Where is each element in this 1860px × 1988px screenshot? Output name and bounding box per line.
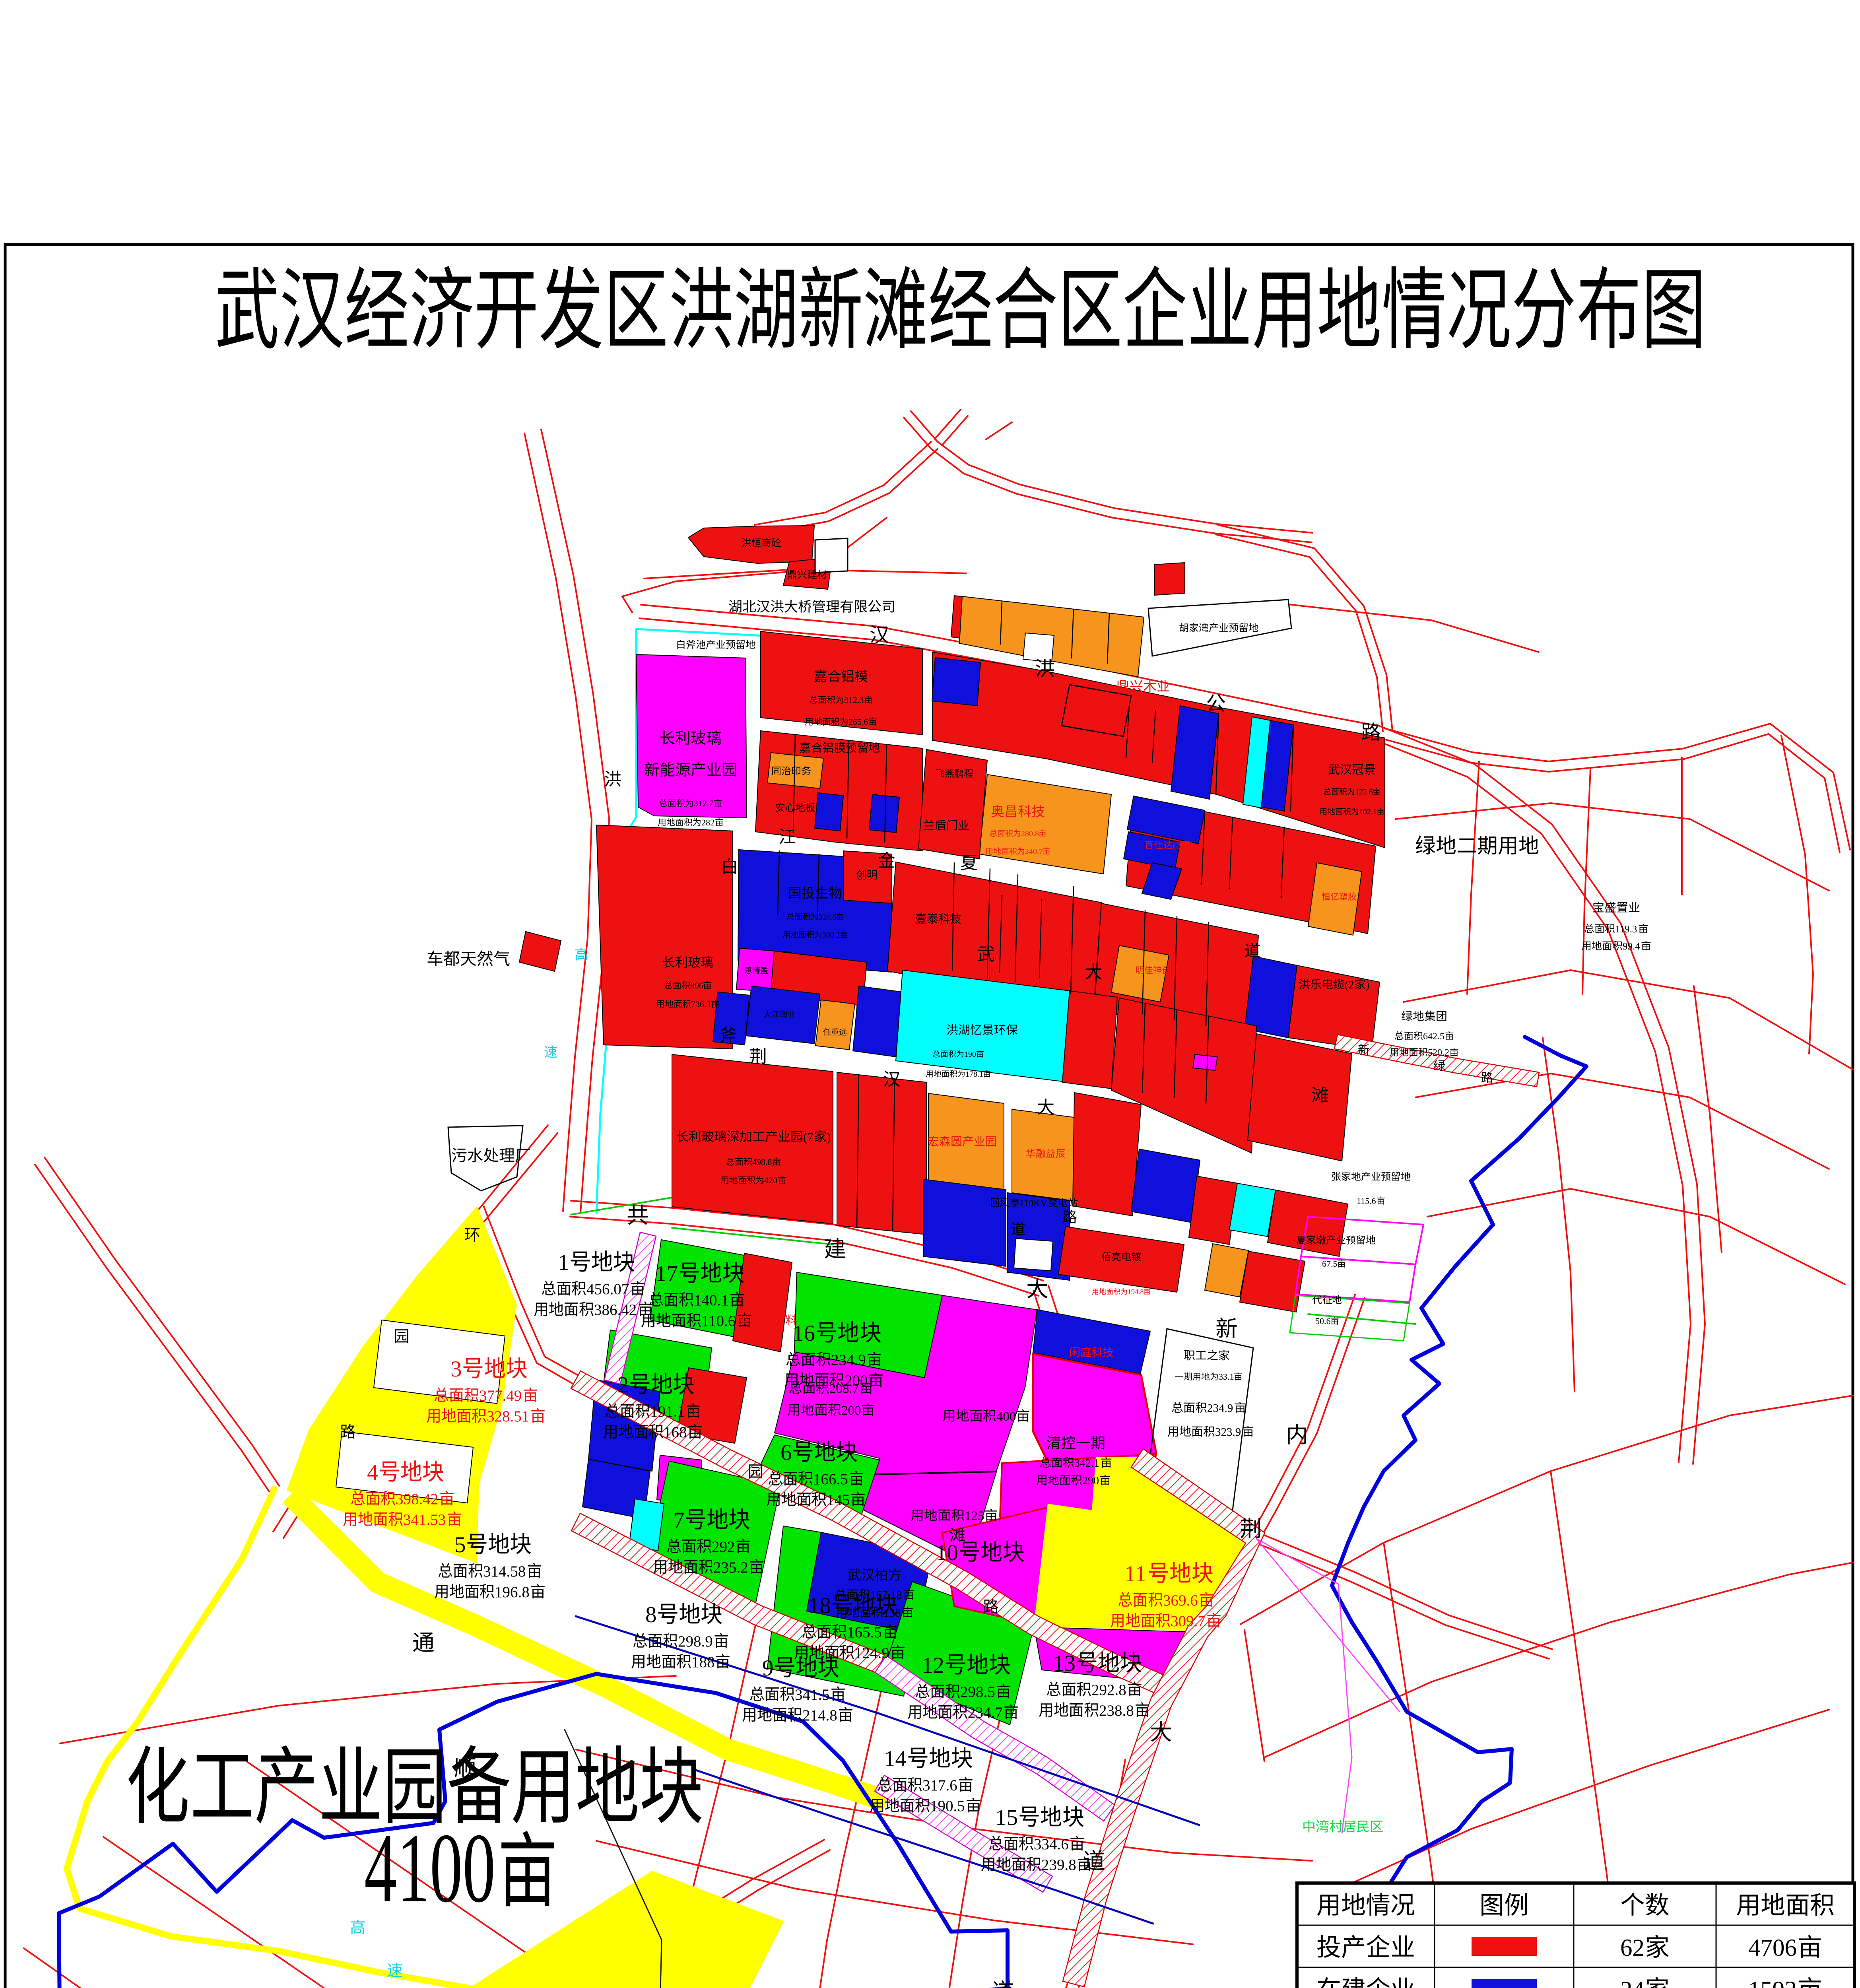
svg-text:309.7: 309.7 — [1171, 1613, 1206, 1630]
svg-text:3: 3 — [450, 1357, 462, 1382]
svg-text:342.1: 342.1 — [1074, 1457, 1099, 1470]
svg-text:2: 2 — [617, 1373, 629, 1398]
svg-text:62: 62 — [1620, 1935, 1644, 1961]
svg-text:): ) — [827, 1130, 831, 1144]
svg-text:208.7: 208.7 — [829, 1382, 859, 1396]
svg-text:12: 12 — [922, 1653, 944, 1678]
svg-text:282: 282 — [701, 817, 714, 827]
svg-text:238.8: 238.8 — [1099, 1702, 1134, 1719]
svg-text:386.42: 386.42 — [594, 1301, 637, 1318]
svg-text:234.9: 234.9 — [1207, 1402, 1233, 1415]
svg-text:168: 168 — [664, 1424, 687, 1441]
svg-text:400: 400 — [996, 1409, 1016, 1424]
svg-text:145: 145 — [827, 1491, 850, 1508]
svg-text:736.3: 736.3 — [691, 999, 711, 1009]
svg-text:(2: (2 — [1345, 979, 1354, 991]
svg-text:): ) — [1190, 841, 1194, 851]
svg-text:17: 17 — [655, 1261, 678, 1286]
svg-text:196.8: 196.8 — [495, 1584, 530, 1601]
svg-text:323.9: 323.9 — [1215, 1426, 1241, 1439]
svg-text:124.9: 124.9 — [854, 1644, 889, 1662]
svg-text:290.5: 290.5 — [1146, 703, 1164, 712]
svg-text:200: 200 — [841, 1404, 861, 1418]
svg-text:138: 138 — [883, 1607, 901, 1619]
svg-text:14: 14 — [884, 1746, 907, 1771]
svg-text:520.2: 520.2 — [1428, 1048, 1449, 1058]
svg-text:165.5: 165.5 — [847, 1624, 882, 1641]
svg-text:194.8: 194.8 — [1128, 1288, 1144, 1296]
svg-text:191.1: 191.1 — [650, 1403, 685, 1420]
svg-text:7: 7 — [673, 1508, 685, 1533]
svg-text:110KV: 110KV — [1019, 1198, 1047, 1209]
svg-text:312.3: 312.3 — [844, 695, 864, 705]
svg-text:292: 292 — [712, 1538, 735, 1555]
svg-text:190.5: 190.5 — [930, 1798, 965, 1815]
svg-text:33.1: 33.1 — [1219, 1372, 1234, 1382]
svg-text:(7: (7 — [803, 1130, 814, 1144]
svg-text:178.1: 178.1 — [965, 1070, 983, 1079]
svg-text:102.1: 102.1 — [1359, 808, 1377, 816]
svg-text:188: 188 — [691, 1654, 715, 1671]
svg-text:250.1: 250.1 — [1150, 721, 1168, 730]
svg-text:10: 10 — [936, 1540, 958, 1565]
svg-text:265.6: 265.6 — [848, 717, 868, 727]
svg-text:): ) — [1366, 979, 1369, 991]
svg-text:16: 16 — [792, 1321, 815, 1346]
svg-text:15: 15 — [995, 1805, 1018, 1830]
svg-text:18: 18 — [808, 1593, 831, 1618]
svg-text:214.8: 214.8 — [802, 1707, 837, 1724]
svg-text:341.5: 341.5 — [795, 1686, 830, 1703]
svg-text:290: 290 — [1082, 1475, 1099, 1487]
svg-text:166.5: 166.5 — [813, 1471, 848, 1488]
svg-text:4: 4 — [367, 1460, 379, 1485]
svg-text:110.6: 110.6 — [701, 1312, 736, 1330]
svg-text:498.8: 498.8 — [752, 1157, 772, 1167]
svg-text:6: 6 — [781, 1440, 792, 1465]
svg-text:377.49: 377.49 — [479, 1387, 522, 1404]
svg-text:24: 24 — [1620, 1977, 1644, 1988]
svg-text:235.2: 235.2 — [713, 1559, 748, 1576]
svg-text:99.4: 99.4 — [1623, 941, 1640, 952]
svg-text:341.53: 341.53 — [403, 1511, 446, 1528]
svg-text:324.6: 324.6 — [818, 913, 836, 922]
svg-text:140.1: 140.1 — [694, 1292, 729, 1309]
svg-text:280.8: 280.8 — [1021, 829, 1039, 838]
svg-text:456.07: 456.07 — [586, 1281, 629, 1298]
svg-text:115.6: 115.6 — [1357, 1196, 1376, 1206]
svg-text:125: 125 — [965, 1509, 984, 1523]
svg-text:317.6: 317.6 — [922, 1777, 957, 1794]
svg-text:239.8: 239.8 — [1041, 1856, 1076, 1873]
svg-text:8: 8 — [645, 1602, 657, 1627]
svg-text:239.4: 239.4 — [1124, 1272, 1140, 1280]
svg-text:234.9: 234.9 — [831, 1351, 866, 1369]
svg-text:806: 806 — [690, 980, 703, 990]
svg-text:167.18: 167.18 — [870, 1589, 902, 1602]
svg-text:234.7: 234.7 — [968, 1704, 1003, 1721]
svg-text:13: 13 — [1053, 1651, 1076, 1676]
svg-text:1593: 1593 — [1748, 1977, 1797, 1988]
svg-text:420: 420 — [764, 1175, 777, 1185]
svg-text:9: 9 — [762, 1656, 774, 1681]
svg-text:122.6: 122.6 — [1355, 788, 1373, 796]
svg-text:(2: (2 — [1173, 841, 1181, 851]
svg-text:314.58: 314.58 — [483, 1563, 526, 1580]
svg-text:67.5: 67.5 — [1322, 1259, 1338, 1269]
svg-text:119.3: 119.3 — [1615, 924, 1637, 935]
svg-text:298.9: 298.9 — [678, 1633, 713, 1650]
svg-text:369.6: 369.6 — [1163, 1592, 1198, 1609]
svg-text:298.5: 298.5 — [960, 1683, 995, 1701]
svg-text:328.51: 328.51 — [487, 1408, 529, 1425]
svg-text:300.2: 300.2 — [822, 931, 840, 940]
svg-text:50.6: 50.6 — [1315, 1316, 1331, 1326]
svg-text:5: 5 — [454, 1532, 466, 1557]
svg-text:240.7: 240.7 — [1025, 847, 1043, 856]
svg-text:334.6: 334.6 — [1034, 1836, 1069, 1853]
svg-text:190: 190 — [964, 1050, 976, 1059]
svg-text:4100: 4100 — [364, 1813, 495, 1923]
svg-text:312.7: 312.7 — [694, 798, 714, 808]
svg-text:1: 1 — [558, 1250, 569, 1275]
svg-text:292.8: 292.8 — [1091, 1681, 1126, 1699]
svg-text:398.42: 398.42 — [396, 1491, 438, 1508]
svg-text:4706: 4706 — [1748, 1935, 1797, 1961]
svg-text:11: 11 — [1124, 1561, 1146, 1586]
svg-text:642.5: 642.5 — [1423, 1031, 1445, 1042]
